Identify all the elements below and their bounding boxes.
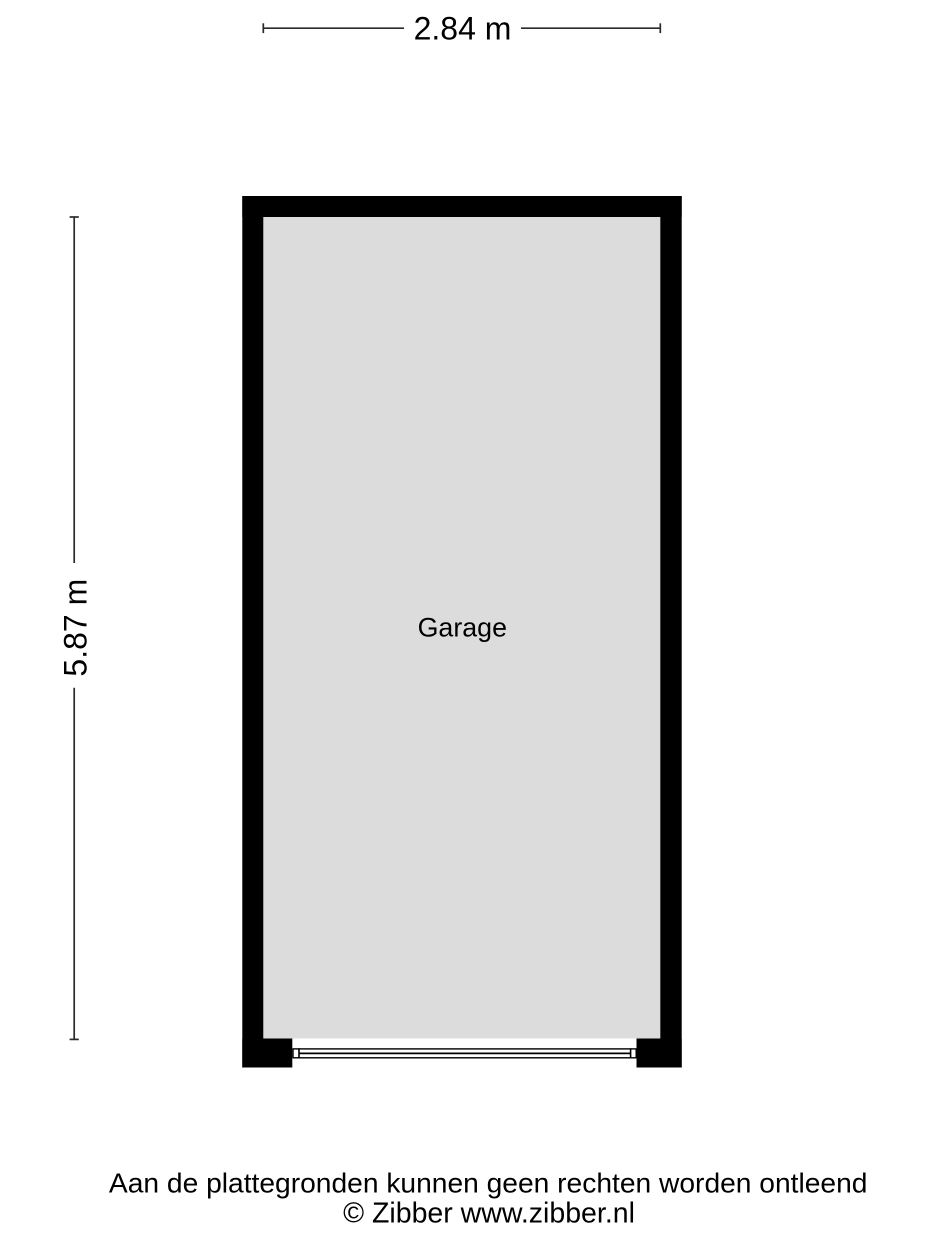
- svg-text:© Zibber www.zibber.nl: © Zibber www.zibber.nl: [343, 1197, 635, 1229]
- svg-text:5.87 m: 5.87 m: [57, 579, 93, 677]
- svg-text:Garage: Garage: [418, 613, 507, 643]
- svg-text:Aan de plattegronden kunnen ge: Aan de plattegronden kunnen geen rechten…: [109, 1166, 868, 1198]
- svg-text:2.84 m: 2.84 m: [414, 10, 512, 46]
